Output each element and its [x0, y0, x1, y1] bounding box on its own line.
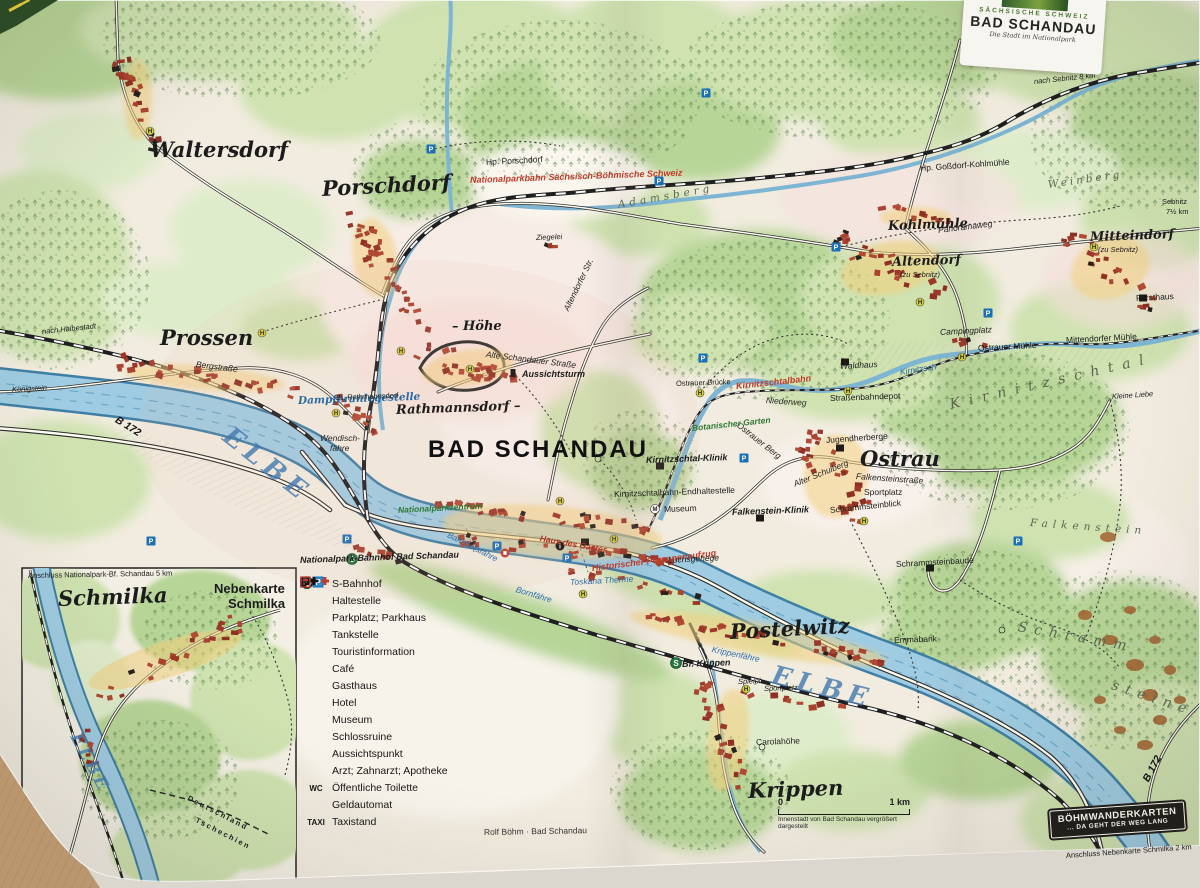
map-artwork: SSHHHHHHHHHHHHHHHPPPPPPPPPPPPPiM: [0, 0, 1200, 888]
legend-item-aussichtspunkt: Aussichtspunkt: [300, 746, 570, 763]
legend-item-touristinformation: iTouristinformation: [300, 644, 570, 661]
scale-line: [778, 809, 910, 815]
legend-item-cafe: Café: [300, 661, 570, 678]
legend-label: Museum: [332, 715, 372, 726]
scale-start: 0: [778, 798, 783, 807]
legend-item-arzt: Arzt; Zahnarzt; Apotheke: [300, 763, 570, 780]
taxi-icon: TAXI: [300, 819, 332, 827]
legend-item-tankstelle: Tankstelle: [300, 627, 570, 644]
legend-label: Geldautomat: [332, 800, 392, 811]
legend-item-schlossruine: Schlossruine: [300, 729, 570, 746]
legend-label: Haltestelle: [332, 596, 381, 607]
legend-label: Tankstelle: [332, 630, 379, 641]
legend-item-museum: MMuseum: [300, 712, 570, 729]
scale-end: 1 km: [889, 798, 910, 807]
legend-label: Öffentliche Toilette: [332, 783, 418, 794]
map-legend: SS-BahnhofHHaltestellePPParkplatz; Parkh…: [300, 576, 570, 831]
legend-label: Café: [332, 664, 354, 675]
legend-item-gasthaus: Gasthaus: [300, 678, 570, 695]
scale-bar: 0 1 km Innenstadt von Bad Schandau vergr…: [778, 798, 910, 830]
legend-item-parkplatz: PPParkplatz; Parkhaus: [300, 610, 570, 627]
legend-label: Parkplatz; Parkhaus: [332, 613, 426, 624]
legend-item-s-bahn: SS-Bahnhof: [300, 576, 570, 593]
photographed-hiking-map: SSHHHHHHHHHHHHHHHPPPPPPPPPPPPPiM: [0, 0, 1200, 888]
legend-label: Aussichtspunkt: [332, 749, 403, 760]
legend-item-wc: WCÖffentliche Toilette: [300, 780, 570, 797]
legend-label: Schlossruine: [332, 732, 392, 743]
legend-label: Hotel: [332, 698, 357, 709]
legend-label: Taxistand: [332, 817, 376, 828]
legend-label: Gasthaus: [332, 681, 377, 692]
scale-note: Innenstadt von Bad Schandau vergrößert d…: [778, 817, 910, 830]
legend-label: Arzt; Zahnarzt; Apotheke: [332, 766, 448, 777]
legend-item-taxi: TAXITaxistand: [300, 814, 570, 831]
legend-item-geldautomat: Geldautomat: [300, 797, 570, 814]
wc-icon: WC: [300, 785, 332, 793]
legend-item-haltestelle: HHaltestelle: [300, 593, 570, 610]
legend-label: S-Bahnhof: [332, 579, 382, 590]
map-cover-card: SÄCHSISCHE SCHWEIZ BAD SCHANDAU Die Stad…: [959, 0, 1106, 75]
legend-item-hotel: Hotel: [300, 695, 570, 712]
legend-label: Touristinformation: [332, 647, 415, 658]
